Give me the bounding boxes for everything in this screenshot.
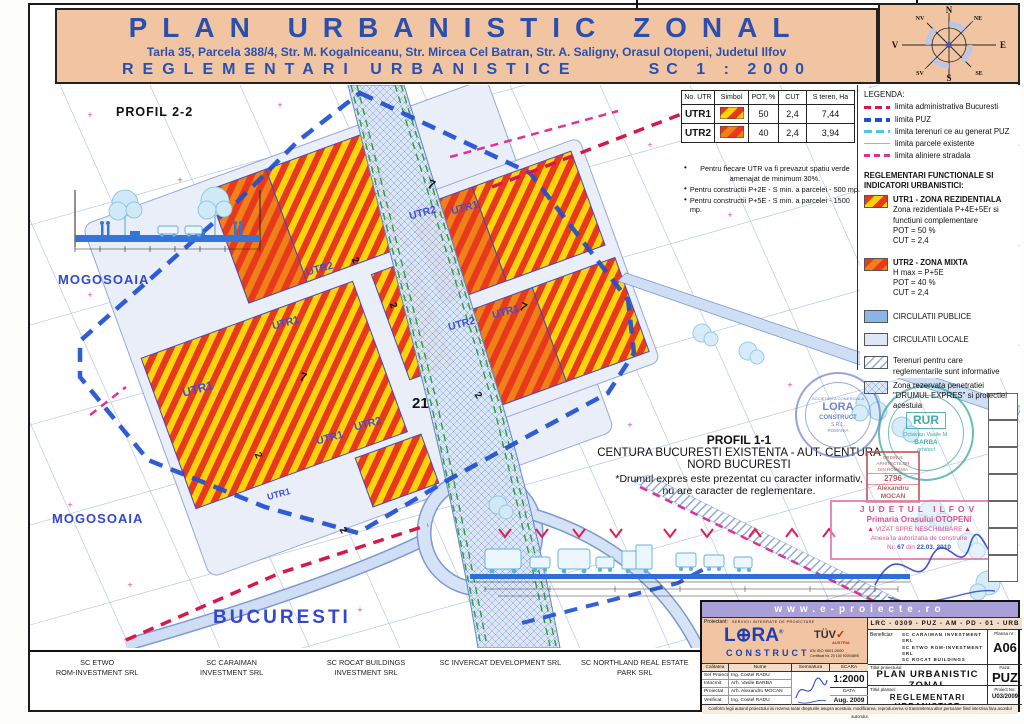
compass-rose-icon: N S E V NE NV SE SV bbox=[880, 5, 1018, 82]
svg-text:SE: SE bbox=[975, 71, 982, 77]
legend-terenuri-informative: Terenuri pentru care reglementarile sunt… bbox=[864, 356, 1018, 376]
circulatii-locale-swatch-icon bbox=[864, 333, 888, 346]
roles-table: Calitatea Nume Semnatura SCARA Sef Proie… bbox=[702, 664, 868, 705]
company-label: SC ROCAT BUILDINGSINVESTMENT SRL bbox=[299, 658, 433, 678]
legend-line-parcele-icon bbox=[864, 143, 890, 144]
legend-divider bbox=[857, 85, 858, 370]
faza-cell: Faza: PUZ bbox=[988, 664, 1022, 686]
plansa-cell: Plansa nr : A06 bbox=[988, 630, 1022, 665]
project-title-cell: Titlul proiectului: PLAN URBANISTIC ZONA… bbox=[868, 664, 988, 686]
legend-utr2: UTR2 - ZONA MIXTA H max = P+5E POT = 40 … bbox=[864, 258, 1018, 299]
legend-circulatii-locale: CIRCULATII LOCALE bbox=[864, 333, 1018, 346]
svg-text:NE: NE bbox=[974, 16, 982, 22]
utr-table-row: UTR1 50 2,4 7,44 bbox=[682, 105, 855, 124]
svg-text:V: V bbox=[892, 40, 899, 50]
profil-2-2-label: PROFIL 2-2 bbox=[116, 105, 193, 119]
header-subtitle: REGLEMENTARI URBANISTICE bbox=[122, 61, 579, 79]
utr-table-header-row: No. UTR Simbol POT, % CUT S teren, Ha bbox=[682, 91, 855, 105]
legend-line-terenuri-icon bbox=[864, 130, 890, 133]
title-block: www.e-proiecte.ro Proiectant: SERVICII I… bbox=[700, 600, 1020, 712]
place-label-bucuresti: BUCURESTI bbox=[213, 607, 351, 629]
header-banner: PLAN URBANISTIC ZONAL Tarla 35, Parcela … bbox=[55, 8, 878, 84]
beneficiar-cell: Beneficiar: SC CARAIMAN INVESTMENT SRL S… bbox=[868, 630, 988, 665]
page-title: PLAN URBANISTIC ZONAL bbox=[57, 12, 876, 44]
legend: LEGENDA: limita administrativa Bucuresti… bbox=[860, 88, 1018, 378]
svg-text:+: + bbox=[357, 605, 362, 615]
website-banner: www.e-proiecte.ro bbox=[702, 602, 1018, 618]
svg-text:+: + bbox=[627, 420, 632, 430]
svg-text:+: + bbox=[177, 175, 182, 185]
place-label-mogosoaia: MOGOSOAIA bbox=[58, 272, 149, 287]
svg-text:+: + bbox=[127, 580, 132, 590]
company-label: SC INVERCAT DEVELOPMENT SRL bbox=[433, 658, 567, 668]
svg-text:+: + bbox=[787, 380, 792, 390]
plan-sheet: PLAN URBANISTIC ZONAL Tarla 35, Parcela … bbox=[0, 0, 1024, 724]
legend-reg-title: REGLEMENTARI FUNCTIONALE SI INDICATORI U… bbox=[864, 171, 1004, 191]
legend-line-aliniere-icon bbox=[864, 154, 890, 157]
stamp-oar: ORDINUL ARHITECTILOR DIN ROMANIA 2796 Al… bbox=[866, 451, 920, 503]
place-label-mogosoaia-2: MOGOSOAIA bbox=[52, 511, 143, 526]
svg-text:+: + bbox=[647, 140, 652, 150]
utr1-swatch-icon bbox=[864, 195, 888, 208]
project-code: LRC - 0309 - PUZ - AM - PD - 01 - URB bbox=[868, 618, 1022, 630]
plansa-number: A06 bbox=[988, 640, 1022, 655]
legend-line-admin-icon bbox=[864, 106, 890, 109]
svg-text:+: + bbox=[87, 290, 92, 300]
svg-text:+: + bbox=[277, 100, 282, 110]
legend-circulatii-publice: CIRCULATII PUBLICE bbox=[864, 310, 1018, 323]
copyright-note: Conform legii autorul proiectului isi re… bbox=[702, 705, 1018, 714]
utr2-symbol-swatch bbox=[715, 124, 749, 143]
company-label: SC CARAIMANINVESTMENT SRL bbox=[164, 658, 298, 678]
road-number-21: 21 bbox=[412, 395, 429, 412]
legend-utr1: UTR1 - ZONA REZIDENTIALA Zona rezidentia… bbox=[864, 195, 1018, 246]
hatch-swatch-icon bbox=[864, 356, 888, 369]
utr-table-row: UTR2 40 2,4 3,94 bbox=[682, 124, 855, 143]
scale-value: 1:2000 bbox=[830, 672, 868, 688]
svg-text:E: E bbox=[1000, 40, 1006, 50]
svg-text:SV: SV bbox=[916, 71, 924, 77]
utr-table: No. UTR Simbol POT, % CUT S teren, Ha UT… bbox=[681, 90, 855, 143]
registration-column bbox=[988, 393, 1018, 582]
project-number-cell: Proiect No: U03/2009 bbox=[988, 686, 1022, 705]
legend-zona-rezervata: Zona rezervata penetratiei "DRUMUL EXPRE… bbox=[864, 381, 1018, 411]
svg-text:+: + bbox=[67, 500, 72, 510]
sheet-title-cell: Titlul plansei: REGLEMENTARI URBANISTICE bbox=[868, 686, 988, 705]
circulatii-publice-swatch-icon bbox=[864, 310, 888, 323]
site-address: Tarla 35, Parcela 388/4, Str. M. Kogalni… bbox=[57, 45, 876, 59]
header-scale: SC 1 : 2000 bbox=[649, 61, 811, 79]
companies-strip: SC ETWOROM-INVESTMENT SRL SC CARAIMANINV… bbox=[30, 650, 702, 709]
crosshatch-swatch-icon bbox=[864, 381, 888, 394]
legend-title: LEGENDA: bbox=[864, 90, 1018, 100]
utr2-swatch-icon bbox=[864, 258, 888, 271]
company-label: SC NORTHLAND REAL ESTATEPARK SRL bbox=[568, 658, 702, 678]
utr-notes: •Pentru fiecare UTR va fi prevazut spati… bbox=[684, 164, 860, 216]
compass-panel: N S E V NE NV SE SV bbox=[878, 3, 1020, 84]
signature-scribble-small bbox=[792, 672, 830, 705]
svg-text:NV: NV bbox=[916, 16, 925, 22]
company-label: SC ETWOROM-INVESTMENT SRL bbox=[30, 658, 164, 678]
svg-text:+: + bbox=[87, 110, 92, 120]
utr1-symbol-swatch bbox=[715, 105, 749, 124]
svg-text:N: N bbox=[946, 5, 953, 15]
legend-line-puz-icon bbox=[864, 118, 890, 122]
svg-text:S: S bbox=[946, 73, 951, 82]
date-value: Aug. 2009 bbox=[830, 696, 868, 705]
lora-logo: L⊕RA® bbox=[724, 626, 783, 645]
proiectant-cell: Proiectant: SERVICII INTEGRATE DE PROIEC… bbox=[702, 618, 868, 664]
